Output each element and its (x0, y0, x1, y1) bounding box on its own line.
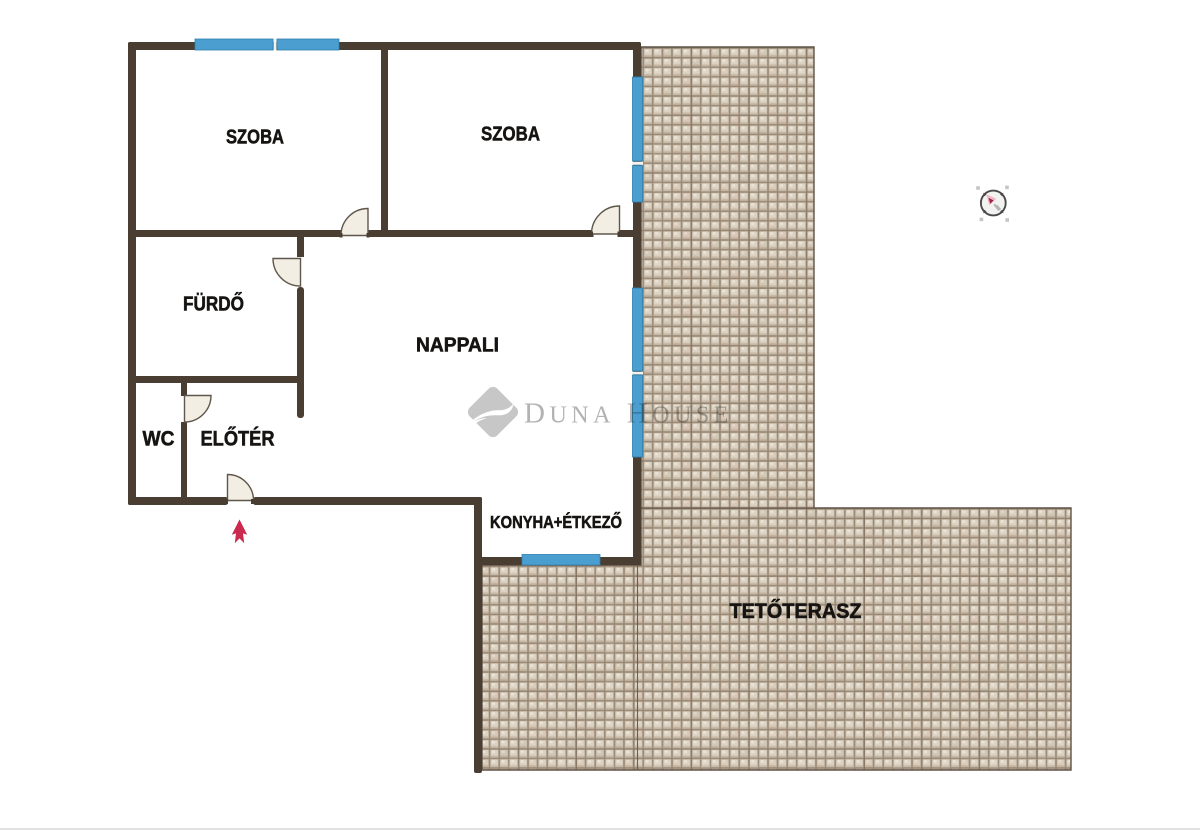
svg-text:ELŐTÉR: ELŐTÉR (201, 428, 275, 451)
svg-text:FÜRDŐ: FÜRDŐ (183, 293, 244, 316)
svg-text:WC: WC (143, 428, 175, 451)
svg-text:DUNA HOUSE: DUNA HOUSE (524, 398, 733, 430)
svg-text:SZOBA: SZOBA (481, 123, 540, 146)
svg-text:NAPPALI: NAPPALI (416, 334, 499, 357)
svg-text:KONYHA+ÉTKEZŐ: KONYHA+ÉTKEZŐ (490, 512, 622, 532)
svg-text:SZOBA: SZOBA (226, 126, 284, 149)
svg-text:TETŐTERASZ: TETŐTERASZ (730, 600, 862, 623)
